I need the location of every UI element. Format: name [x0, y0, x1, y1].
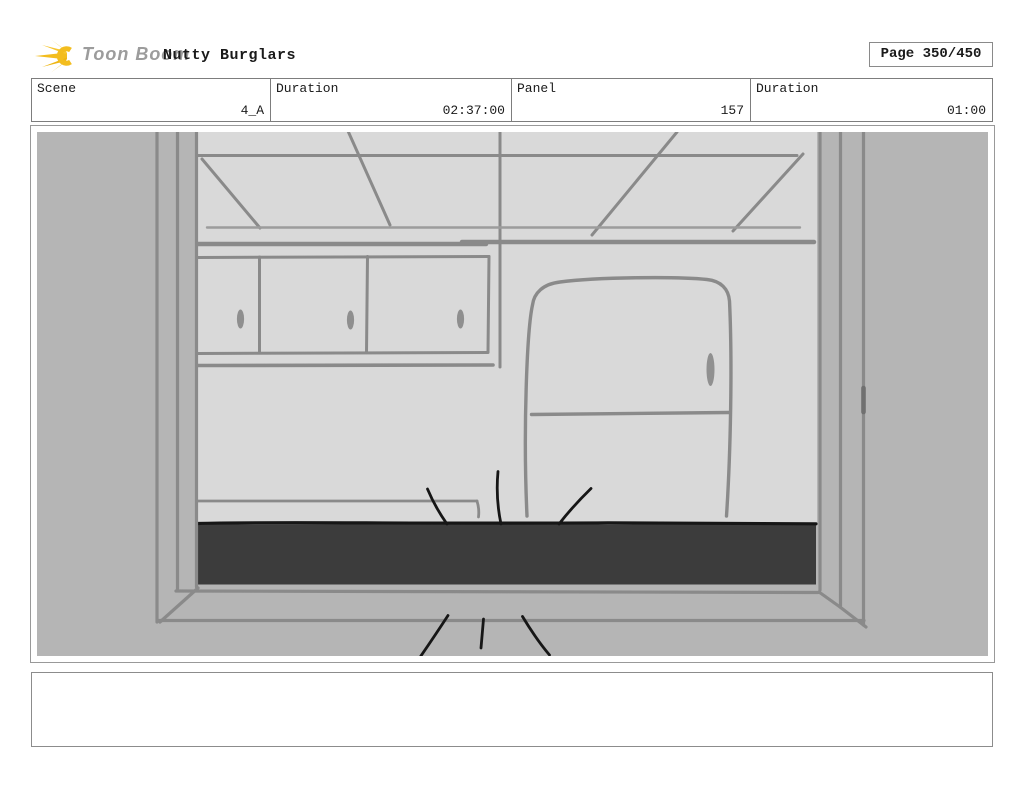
fridge-handle [707, 353, 715, 386]
info-cell-panel-duration: Duration 01:00 [750, 79, 992, 121]
cell-value: 4_A [241, 103, 264, 118]
storyboard-drawing [37, 132, 988, 656]
info-cell-panel: Panel 157 [511, 79, 750, 121]
toonboom-logo-icon [34, 38, 78, 74]
interior-wall [198, 132, 817, 525]
board-title: Nutty Burglars [163, 47, 296, 64]
caption-box [31, 672, 993, 747]
page-root: Toon Boom Nutty Burglars Page 350/450 Sc… [0, 0, 1024, 793]
info-cell-scene-duration: Duration 02:37:00 [270, 79, 511, 121]
counter-bar [198, 523, 816, 585]
cell-label: Duration [276, 81, 338, 96]
cell-label: Duration [756, 81, 818, 96]
storyboard-panel [30, 125, 995, 663]
cell-label: Panel [517, 81, 556, 96]
cell-value: 02:37:00 [443, 103, 505, 118]
cell-label: Scene [37, 81, 76, 96]
cell-value: 157 [721, 103, 744, 118]
page-number-badge: Page 350/450 [869, 42, 993, 67]
cell-value: 01:00 [947, 103, 986, 118]
info-cell-scene: Scene 4_A [32, 79, 270, 121]
info-table: Scene 4_A Duration 02:37:00 Panel 157 Du… [31, 78, 993, 122]
